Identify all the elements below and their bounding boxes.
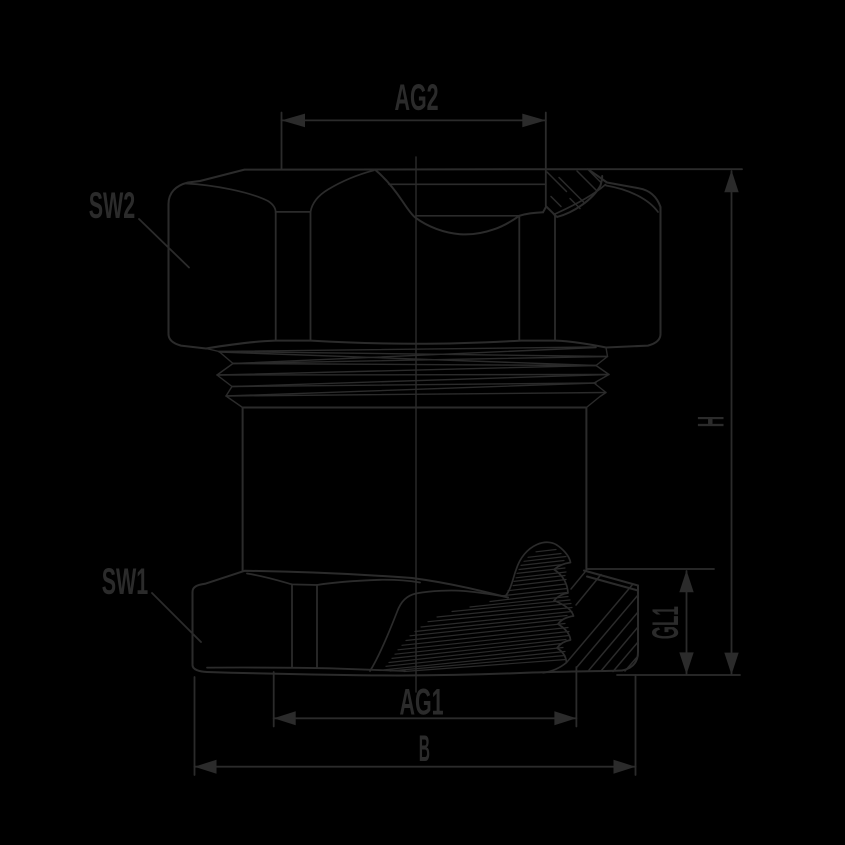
- svg-text:GL1: GL1: [646, 606, 687, 639]
- svg-text:SW1: SW1: [102, 562, 148, 602]
- svg-text:B: B: [419, 728, 430, 770]
- svg-text:SW2: SW2: [89, 186, 135, 226]
- svg-text:H: H: [691, 416, 733, 427]
- svg-text:AG2: AG2: [394, 78, 438, 118]
- svg-text:AG1: AG1: [399, 683, 443, 723]
